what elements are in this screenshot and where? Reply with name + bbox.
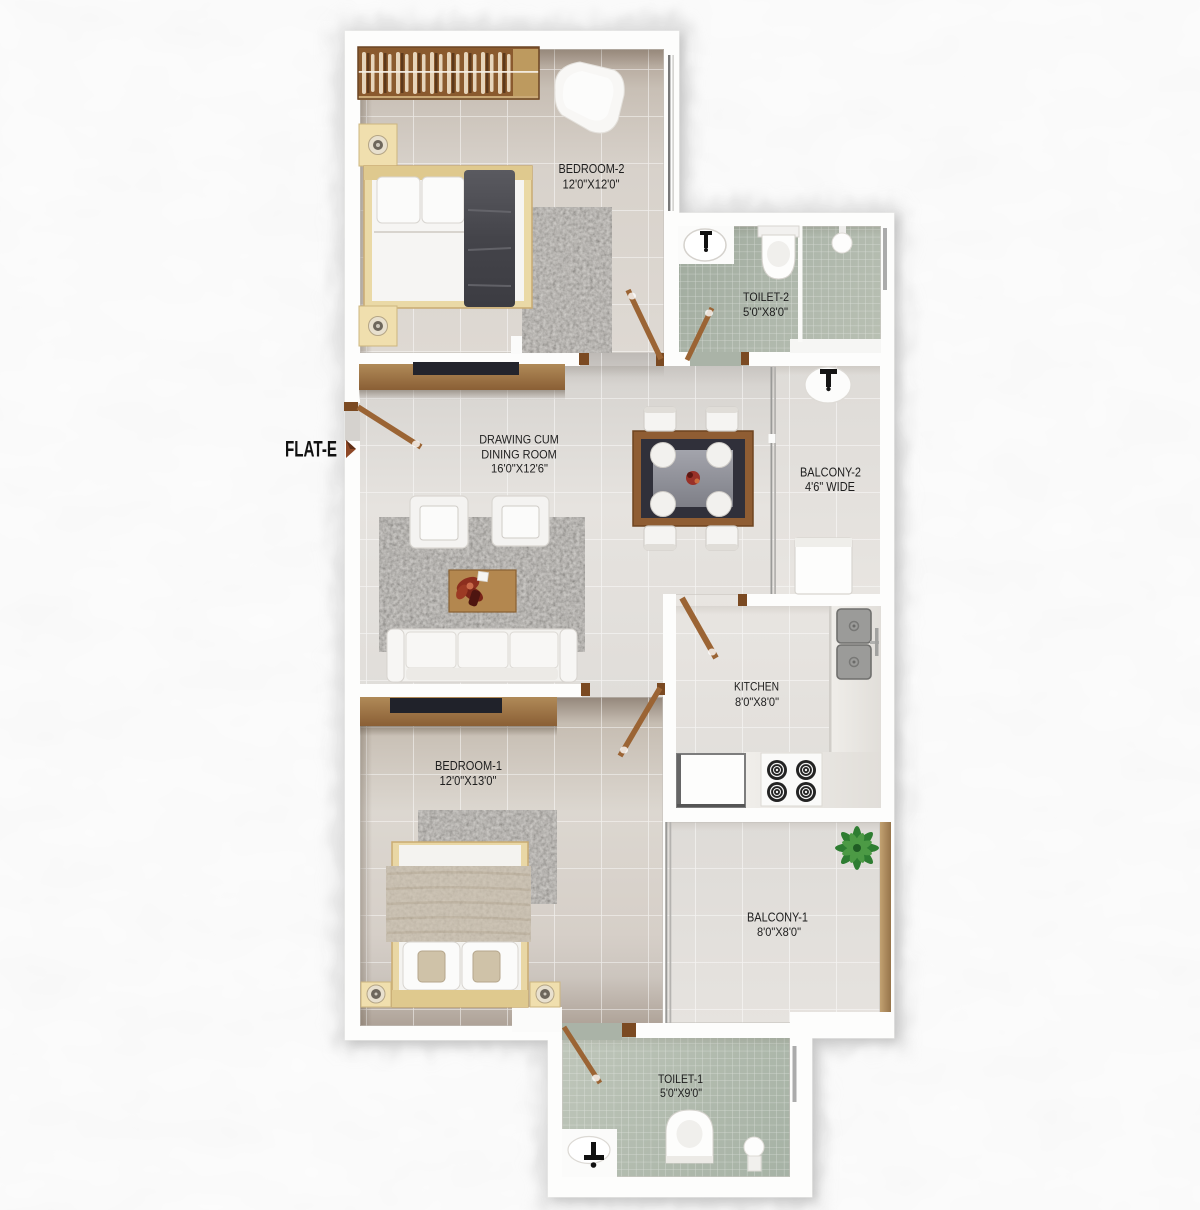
svg-text:16'0"X12'6": 16'0"X12'6" — [491, 461, 548, 475]
svg-text:12'0"X13'0": 12'0"X13'0" — [440, 773, 497, 788]
svg-text:8'0"X8'0": 8'0"X8'0" — [735, 695, 779, 709]
svg-text:4'6" WIDE: 4'6" WIDE — [805, 480, 855, 494]
svg-text:BEDROOM-1: BEDROOM-1 — [435, 758, 502, 773]
svg-text:DRAWING CUM: DRAWING CUM — [479, 433, 559, 447]
svg-text:KITCHEN: KITCHEN — [734, 680, 779, 694]
svg-text:BEDROOM-2: BEDROOM-2 — [559, 161, 625, 176]
svg-text:BALCONY-2: BALCONY-2 — [800, 466, 861, 480]
svg-text:TOILET-1: TOILET-1 — [658, 1074, 703, 1086]
svg-text:DINING ROOM: DINING ROOM — [481, 448, 557, 462]
svg-text:12'0"X12'0": 12'0"X12'0" — [563, 177, 620, 192]
svg-text:5'0"X8'0": 5'0"X8'0" — [743, 307, 788, 319]
svg-text:TOILET-2: TOILET-2 — [743, 292, 789, 304]
svg-text:BALCONY-1: BALCONY-1 — [747, 911, 808, 925]
svg-text:5'0"X9'0": 5'0"X9'0" — [660, 1088, 702, 1100]
svg-text:FLAT-E: FLAT-E — [285, 437, 337, 462]
svg-text:8'0"X8'0": 8'0"X8'0" — [757, 925, 801, 939]
